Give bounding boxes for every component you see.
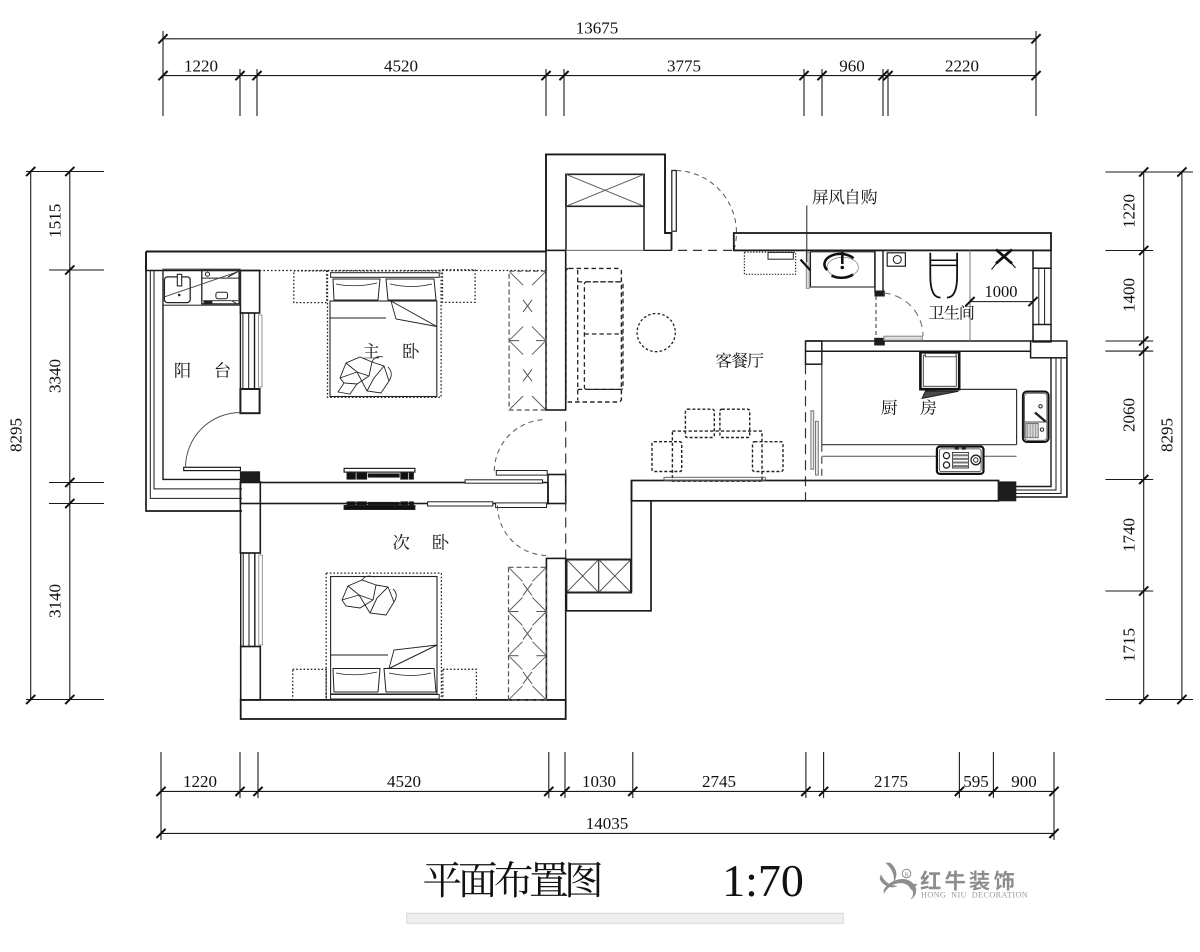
svg-text:2745: 2745 [702, 772, 736, 791]
svg-text:960: 960 [839, 57, 865, 76]
svg-text:595: 595 [963, 772, 989, 791]
svg-text:3140: 3140 [46, 584, 65, 618]
svg-text:1:70: 1:70 [722, 855, 804, 906]
svg-text:1030: 1030 [582, 772, 616, 791]
svg-text:1000: 1000 [985, 282, 1018, 301]
svg-text:14035: 14035 [586, 814, 629, 833]
svg-text:1400: 1400 [1120, 278, 1139, 312]
svg-text:1740: 1740 [1120, 518, 1139, 552]
svg-text:3340: 3340 [46, 359, 65, 393]
svg-text:1515: 1515 [46, 204, 65, 238]
svg-text:1220: 1220 [184, 57, 218, 76]
svg-text:2060: 2060 [1120, 398, 1139, 432]
svg-text:R: R [904, 872, 909, 879]
svg-text:2220: 2220 [945, 57, 979, 76]
svg-text:4520: 4520 [387, 772, 421, 791]
svg-text:3775: 3775 [667, 57, 701, 76]
svg-text:1220: 1220 [1120, 194, 1139, 228]
svg-text:900: 900 [1011, 772, 1037, 791]
svg-text:8295: 8295 [1158, 418, 1177, 452]
svg-text:1715: 1715 [1120, 628, 1139, 662]
svg-text:2175: 2175 [874, 772, 908, 791]
svg-text:HONG NIU DECORATION: HONG NIU DECORATION [921, 891, 1028, 900]
svg-text:13675: 13675 [576, 19, 619, 38]
svg-text:4520: 4520 [384, 57, 418, 76]
svg-text:1220: 1220 [183, 772, 217, 791]
svg-text:8295: 8295 [7, 418, 26, 452]
